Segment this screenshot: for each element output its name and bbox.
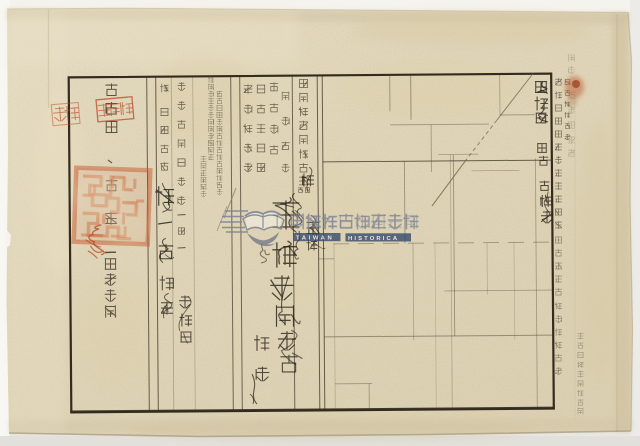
svg-text:TAIWAN: TAIWAN — [296, 236, 334, 242]
svg-text:HISTORICA: HISTORICA — [348, 236, 399, 242]
